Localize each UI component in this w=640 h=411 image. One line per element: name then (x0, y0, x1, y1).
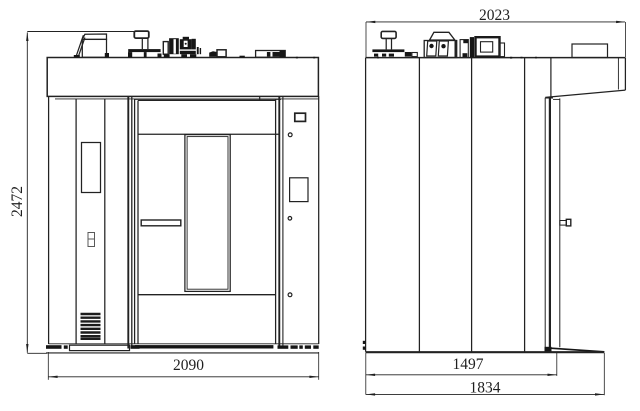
svg-text:2472: 2472 (9, 186, 26, 217)
svg-text:2090: 2090 (173, 357, 204, 374)
svg-text:1834: 1834 (470, 379, 501, 396)
svg-text:1497: 1497 (453, 356, 484, 373)
svg-text:2023: 2023 (479, 7, 510, 24)
